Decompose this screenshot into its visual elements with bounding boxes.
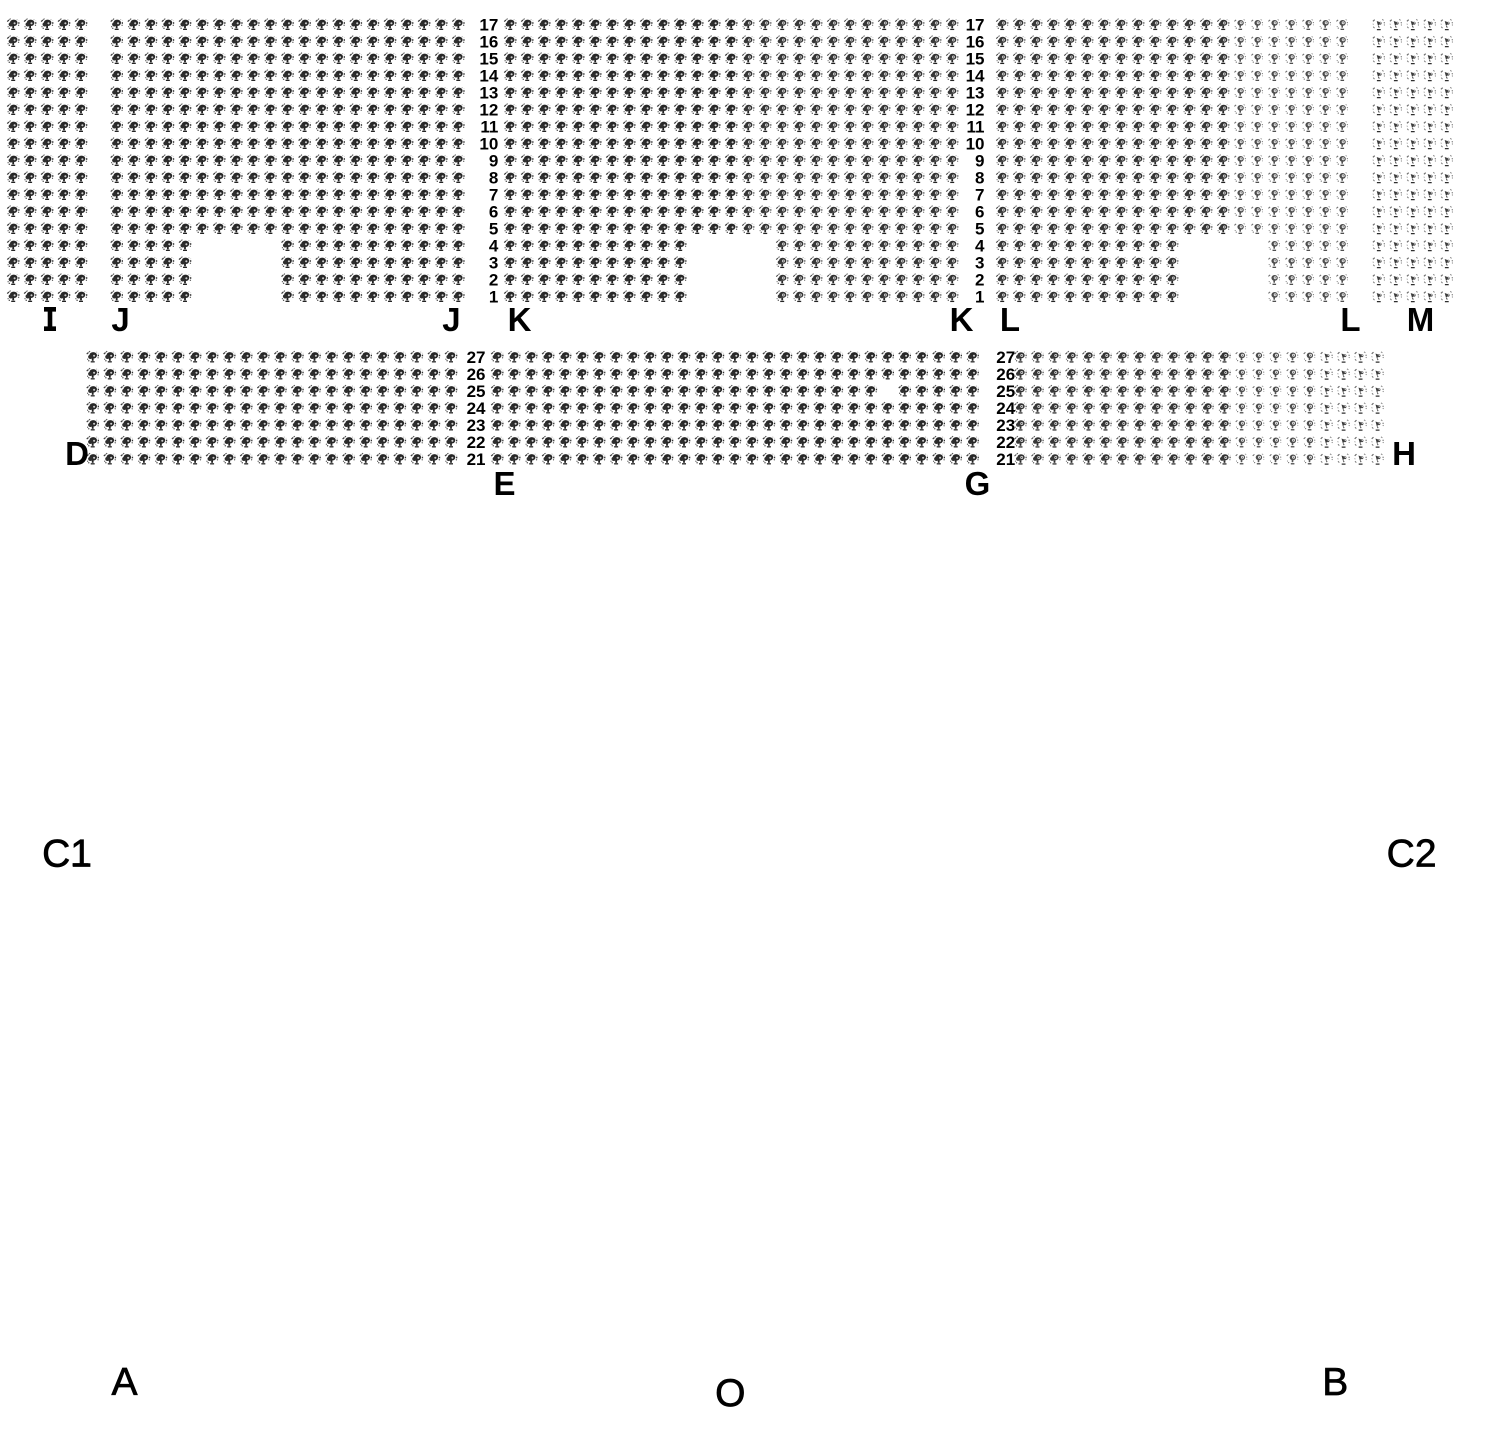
svg-text:5: 5 <box>489 220 498 239</box>
svg-text:21: 21 <box>467 450 486 469</box>
svg-text:3: 3 <box>975 254 984 273</box>
svg-text:K: K <box>950 301 974 338</box>
svg-text:11: 11 <box>967 118 985 137</box>
svg-text:3: 3 <box>489 254 498 273</box>
svg-text:4: 4 <box>489 237 499 256</box>
svg-text:15: 15 <box>479 50 498 69</box>
svg-text:5: 5 <box>975 220 984 239</box>
svg-text:8: 8 <box>975 169 984 188</box>
svg-text:12: 12 <box>479 101 498 120</box>
svg-text:C2: C2 <box>1387 832 1437 875</box>
svg-text:16: 16 <box>479 33 498 52</box>
svg-text:17: 17 <box>966 16 985 35</box>
svg-text:23: 23 <box>467 416 486 435</box>
svg-text:4: 4 <box>975 237 985 256</box>
svg-text:17: 17 <box>479 16 498 35</box>
svg-text:8: 8 <box>489 169 498 188</box>
svg-text:10: 10 <box>966 135 985 154</box>
svg-text:27: 27 <box>996 348 1015 367</box>
svg-text:1: 1 <box>489 288 498 307</box>
svg-text:9: 9 <box>975 152 984 171</box>
svg-text:D: D <box>65 435 89 472</box>
svg-text:25: 25 <box>996 382 1015 401</box>
svg-text:15: 15 <box>966 50 985 69</box>
svg-text:K: K <box>508 301 532 338</box>
svg-text:L: L <box>1000 301 1020 338</box>
svg-text:26: 26 <box>467 365 486 384</box>
svg-text:10: 10 <box>479 135 498 154</box>
svg-text:25: 25 <box>467 382 486 401</box>
svg-text:7: 7 <box>975 186 984 205</box>
svg-text:L: L <box>1340 301 1360 338</box>
svg-text:H: H <box>1392 435 1416 472</box>
svg-text:22: 22 <box>996 433 1015 452</box>
svg-text:M: M <box>1407 301 1435 338</box>
svg-text:J: J <box>442 301 460 338</box>
svg-text:J: J <box>111 301 129 338</box>
svg-text:11: 11 <box>480 118 498 137</box>
svg-text:21: 21 <box>996 450 1015 469</box>
svg-text:14: 14 <box>966 67 985 86</box>
svg-text:2: 2 <box>975 271 984 290</box>
svg-text:A: A <box>111 1361 137 1404</box>
svg-text:9: 9 <box>489 152 498 171</box>
svg-text:6: 6 <box>489 203 498 222</box>
svg-text:7: 7 <box>489 186 498 205</box>
svg-text:24: 24 <box>996 399 1015 418</box>
svg-text:16: 16 <box>966 33 985 52</box>
svg-text:B: B <box>1322 1361 1348 1404</box>
svg-text:24: 24 <box>467 399 486 418</box>
svg-text:1: 1 <box>975 288 984 307</box>
svg-text:C1: C1 <box>42 832 92 875</box>
svg-text:13: 13 <box>966 84 985 103</box>
svg-text:27: 27 <box>467 348 486 367</box>
svg-text:14: 14 <box>479 67 498 86</box>
svg-text:2: 2 <box>489 271 498 290</box>
svg-text:G: G <box>965 465 991 502</box>
svg-text:12: 12 <box>966 101 985 120</box>
svg-text:26: 26 <box>996 365 1015 384</box>
svg-text:O: O <box>715 1372 745 1415</box>
svg-text:23: 23 <box>996 416 1015 435</box>
svg-text:13: 13 <box>479 84 498 103</box>
svg-text:E: E <box>493 465 515 502</box>
svg-text:22: 22 <box>467 433 486 452</box>
svg-text:6: 6 <box>975 203 984 222</box>
